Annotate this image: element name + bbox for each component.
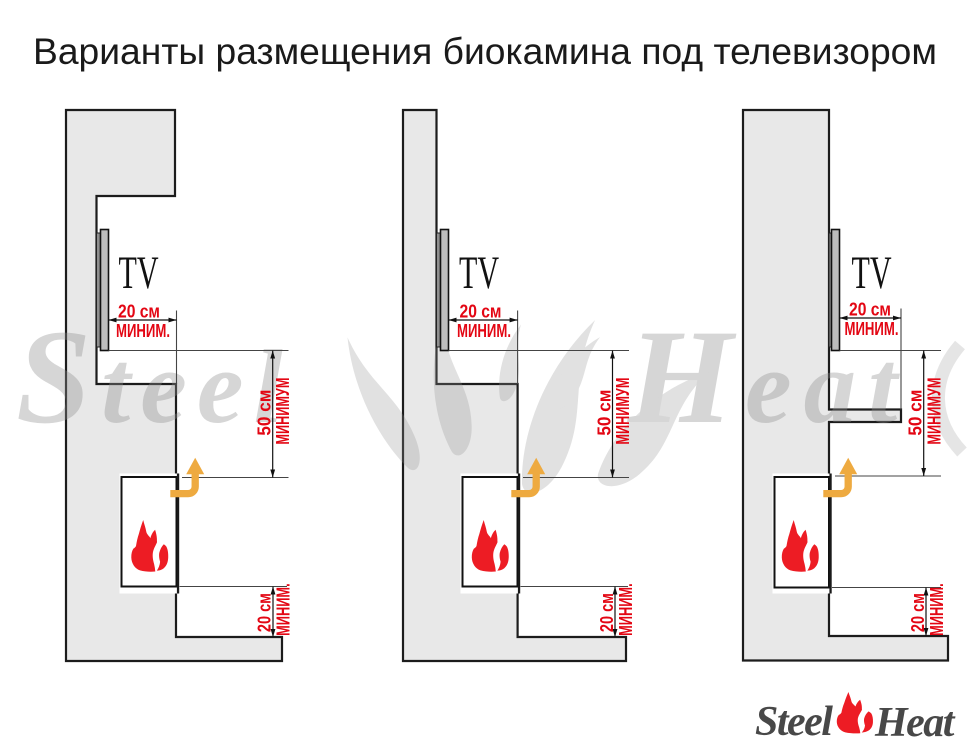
svg-text:МИНИМ.: МИНИМ. (116, 320, 170, 341)
svg-text:TV: TV (459, 246, 499, 298)
svg-text:МИНИМ.: МИНИМ. (845, 318, 899, 339)
svg-text:МИНИМ.: МИНИМ. (457, 320, 511, 341)
svg-text:МИНИМ.: МИНИМ. (615, 583, 636, 636)
svg-text:Heat: Heat (874, 700, 956, 746)
svg-text:Steel: Steel (755, 699, 833, 745)
svg-text:20 см: 20 см (460, 301, 502, 322)
svg-text:20 см: 20 см (849, 299, 891, 320)
svg-text:МИНИМ.: МИНИМ. (926, 583, 947, 636)
svg-text:МИНИМУМ: МИНИМУМ (272, 378, 293, 445)
svg-text:МИНИМУМ: МИНИМУМ (612, 378, 633, 445)
svg-text:20 см: 20 см (118, 301, 160, 322)
svg-text:МИНИМ.: МИНИМ. (272, 583, 293, 636)
svg-text:Варианты размещения биокамина: Варианты размещения биокамина под телеви… (33, 31, 937, 72)
svg-text:TV: TV (851, 246, 891, 298)
svg-text:TV: TV (118, 246, 158, 298)
svg-text:МИНИМУМ: МИНИМУМ (923, 378, 944, 445)
